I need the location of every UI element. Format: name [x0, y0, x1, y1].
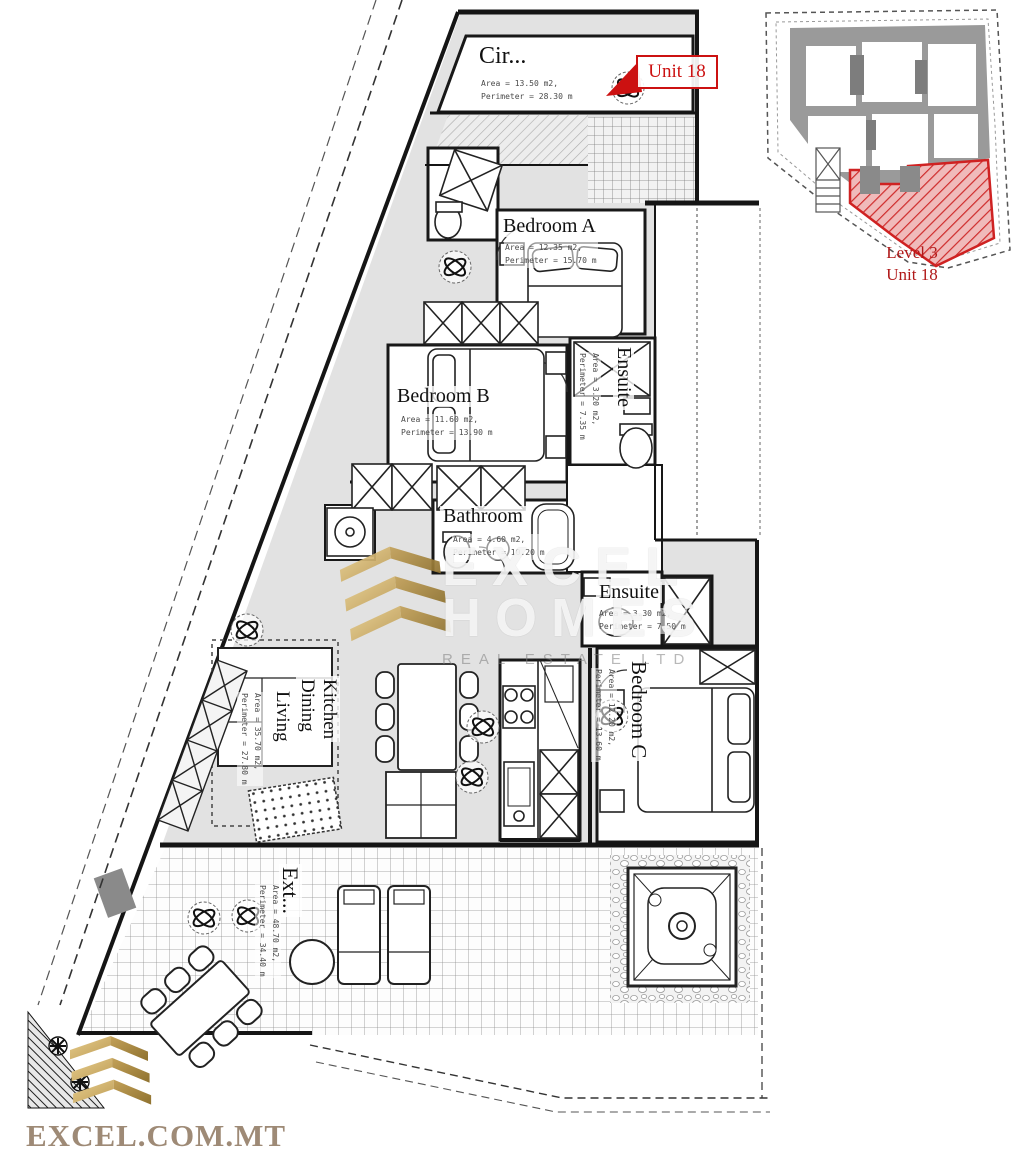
exterior-perimeter: Perimeter = 34.40 m: [255, 885, 268, 977]
metrics-ensuite-a: Area = 3.20 m2, Perimeter = 7.35 m: [575, 352, 601, 441]
label-circulation: Cir...: [476, 44, 529, 69]
bedroom-a-perimeter: Perimeter = 15.70 m: [505, 255, 597, 268]
round-table: [290, 940, 334, 984]
footer-logo: [70, 1036, 151, 1105]
label-kitchen-dining: Kitchen Dining: [296, 676, 340, 742]
metrics-ensuite-c: Area = 3.30 m2, Perimeter = 7.50 m: [598, 608, 687, 634]
metrics-bathroom: Area = 4.60 m2, Perimeter = 10.20 m: [452, 534, 546, 560]
metrics-exterior: Area = 48.70 m2, Perimeter = 34.40 m: [255, 884, 281, 978]
room-hall: [567, 465, 662, 572]
hot-tub: [628, 868, 736, 986]
wardrobe-a: [424, 302, 538, 344]
bedroom-c-perimeter: Perimeter = 13.60 m: [591, 669, 604, 761]
kitchen-label: Kitchen: [318, 679, 340, 739]
ensuite-a-area: Area = 3.20 m2,: [588, 353, 601, 440]
metrics-circulation: Area = 13.50 m2, Perimeter = 28.30 m: [480, 78, 574, 104]
ensuite-c-area: Area = 3.30 m2,: [599, 608, 686, 621]
metrics-bedroom-b: Area = 11.60 m2, Perimeter = 13.90 m: [400, 414, 494, 440]
dining-label: Dining: [296, 679, 318, 739]
label-living: Living: [272, 688, 292, 745]
wardrobe-b: [352, 464, 525, 510]
metrics-bedroom-a: Area = 12.35 m2, Perimeter = 15.70 m: [504, 242, 598, 268]
label-bedroom-a: Bedroom A: [500, 216, 599, 237]
label-ensuite-c: Ensuite: [596, 582, 662, 603]
label-bedroom-b: Bedroom B: [394, 386, 493, 407]
metrics-living: Area = 35.70 m2, Perimeter = 27.80 m: [237, 692, 263, 786]
mini-map-caption: Level 3 Unit 18: [852, 242, 972, 286]
unit-tag: Unit 18: [636, 55, 718, 89]
label-ensuite-a: Ensuite: [613, 344, 634, 410]
wall-shaft: [94, 868, 137, 918]
bedroom-c-area: Area = 12.20 m2,: [604, 669, 617, 761]
bathroom-area: Area = 4.60 m2,: [453, 534, 545, 547]
label-exterior: Ext...: [279, 864, 302, 917]
living-area: Area = 35.70 m2,: [250, 693, 263, 785]
bedroom-b-area: Area = 11.60 m2,: [401, 414, 493, 427]
website-text: EXCEL.COM.MT: [26, 1118, 286, 1154]
bathroom-perimeter: Perimeter = 10.20 m: [453, 547, 545, 560]
label-bedroom-c: Bedroom C: [628, 658, 650, 761]
exterior-area: Area = 48.70 m2,: [268, 885, 281, 977]
bedroom-b-perimeter: Perimeter = 13.90 m: [401, 427, 493, 440]
floor-plan-drawing: [0, 0, 1024, 1171]
metrics-bedroom-c: Area = 12.20 m2, Perimeter = 13.60 m: [591, 668, 617, 762]
circulation-perimeter: Perimeter = 28.30 m: [481, 91, 573, 104]
mini-map-elevator: [816, 148, 840, 212]
circulation-area: Area = 13.50 m2,: [481, 78, 573, 91]
mini-map: [766, 10, 1010, 268]
living-perimeter: Perimeter = 27.80 m: [237, 693, 250, 785]
mini-map-unit: Unit 18: [852, 264, 972, 286]
label-bathroom: Bathroom: [440, 506, 526, 527]
bedroom-a-area: Area = 12.35 m2,: [505, 242, 597, 255]
ensuite-a-perimeter: Perimeter = 7.35 m: [575, 353, 588, 440]
ensuite-c-perimeter: Perimeter = 7.50 m: [599, 621, 686, 634]
mini-map-level: Level 3: [852, 242, 972, 264]
floor-plan-page: Cir... Area = 13.50 m2, Perimeter = 28.3…: [0, 0, 1024, 1171]
